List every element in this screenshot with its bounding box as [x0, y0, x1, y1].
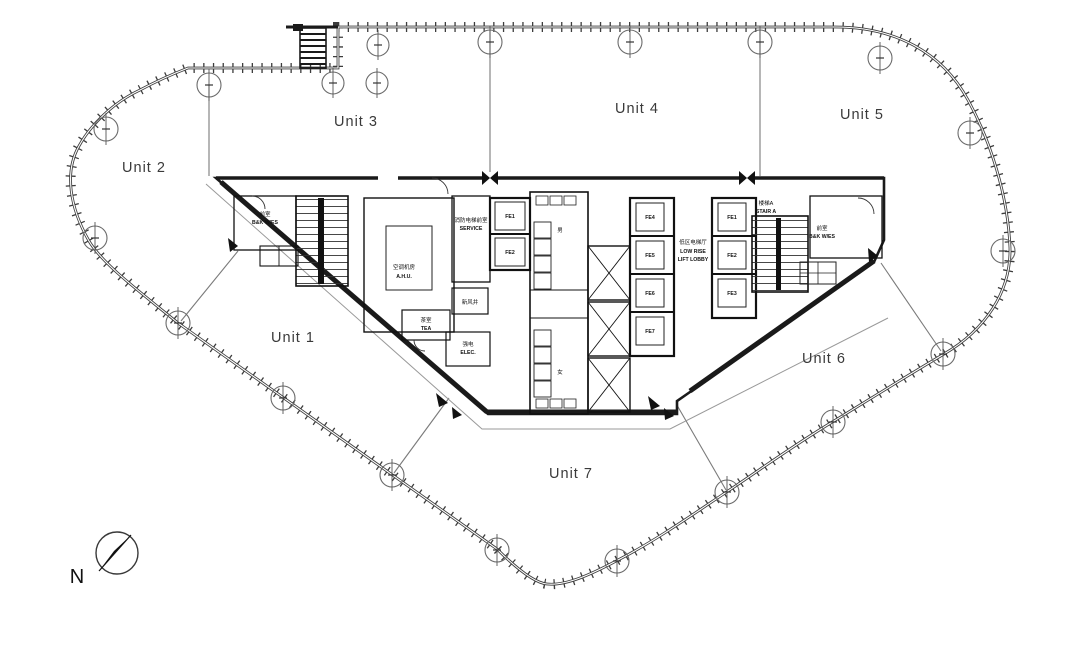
grid-marker [478, 26, 502, 58]
room-tea-label-en: TEA [421, 326, 432, 332]
floor-plan-sheet: 前室 B&K W/ES 空调机房 A.H.U. 消防电梯前室 SERVICE [0, 0, 1080, 667]
room-right-lobby-label-zh: 前室 [816, 224, 828, 232]
lobby-label-en2: LIFT LOBBY [678, 257, 709, 263]
room-ahu-label-en: A.H.U. [396, 274, 412, 280]
door-opening [378, 172, 398, 183]
lobby-label-zh: 低区电梯厅 [679, 238, 707, 246]
unit-4-label: Unit 4 [615, 101, 659, 117]
lift-label: FE2 [727, 253, 737, 259]
room-elec-label-en: ELEC. [460, 350, 476, 356]
room-fresh-air-label: 新风井 [462, 298, 479, 306]
grid-marker [618, 26, 642, 58]
demising-line-u1-u2 [181, 251, 238, 321]
demising-line-u5-u6 [881, 263, 941, 351]
lift-label: FE4 [645, 215, 655, 221]
compass-needle-line [99, 535, 131, 571]
grid-marker [94, 113, 118, 145]
grid-marker [366, 68, 388, 98]
lobby-label-en1: LOW RISE [680, 249, 706, 255]
unit-7-label: Unit 7 [549, 466, 593, 482]
lift-label: FE5 [645, 253, 655, 259]
lift-label: FE3 [727, 291, 737, 297]
door-leaf [452, 407, 462, 419]
room-service-label-zh: 消防电梯前室 [454, 216, 488, 224]
grid-marker [868, 42, 892, 74]
north-compass: N [70, 532, 138, 588]
room-service-label-en: SERVICE [460, 226, 483, 232]
grid-marker [322, 68, 344, 98]
lift-label: FE1 [505, 214, 515, 220]
core: 前室 B&K W/ES 空调机房 A.H.U. 消防电梯前室 SERVICE [216, 171, 884, 420]
room-left-lobby-label-en: B&K W/ES [252, 220, 278, 226]
room-right-lobby-label-en: B&K W/ES [809, 234, 835, 240]
low-rise-lift-lobby: 低区电梯厅 LOW RISE LIFT LOBBY [678, 238, 709, 263]
unit-6-label: Unit 6 [802, 351, 846, 367]
lift-label: FE1 [727, 215, 737, 221]
toilet-female-label: 女 [557, 368, 563, 376]
toilet-male-label: 男 [557, 227, 563, 234]
unit-2-label: Unit 2 [122, 160, 166, 176]
door-leaf [436, 393, 448, 407]
north-label: N [70, 566, 84, 588]
unit-3-label: Unit 3 [334, 114, 378, 130]
grid-marker [197, 69, 221, 101]
external-ladder [293, 24, 326, 68]
floor-plan-drawing: 前室 B&K W/ES 空调机房 A.H.U. 消防电梯前室 SERVICE [0, 0, 1080, 667]
grid-marker [485, 534, 509, 566]
grid-marker [605, 545, 629, 577]
demising-line-u7-u1 [394, 398, 449, 473]
stair-a-label-en: STAIR A [756, 209, 776, 215]
grid-marker [271, 382, 295, 414]
grid-marker [367, 30, 389, 60]
grid-marker [748, 26, 772, 58]
lift-label: FE6 [645, 291, 655, 297]
room-tea-label-zh: 茶室 [420, 316, 432, 324]
grid-marker [821, 406, 845, 438]
lift-label: FE2 [505, 250, 515, 256]
lift-label: FE7 [645, 329, 655, 335]
stair-a-label-zh: 楼梯A [759, 199, 774, 207]
room-elec-label-zh: 强电 [462, 340, 474, 348]
unit-5-label: Unit 5 [840, 107, 884, 123]
unit-1-label: Unit 1 [271, 330, 315, 346]
room-left-lobby-label-zh: 前室 [259, 210, 271, 218]
room-ahu-label-zh: 空调机房 [393, 263, 416, 271]
